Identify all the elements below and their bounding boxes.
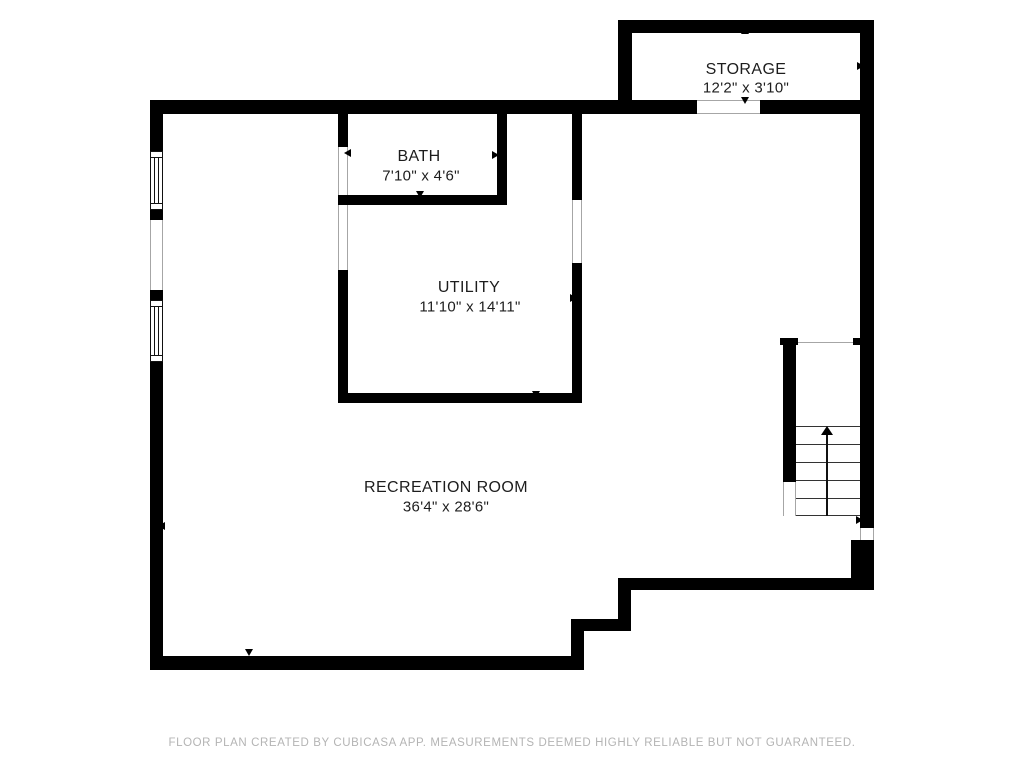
wall-top-under-storage-right — [760, 100, 874, 114]
opening-stair-left-lower — [783, 482, 796, 516]
wall-utility-right-lower — [572, 263, 582, 403]
window-frame-cap — [151, 355, 162, 356]
wall-bottom-right — [618, 578, 874, 590]
dimension-marker-storage-down — [741, 97, 749, 104]
window-frame-cap — [151, 157, 162, 158]
stair-tread — [796, 498, 860, 499]
door-opening-utility-right — [572, 200, 582, 263]
wall-top-under-storage-left — [618, 100, 697, 114]
room-label-utility: UTILITY — [438, 279, 500, 297]
dimension-marker-storage-right — [857, 62, 864, 70]
dimension-marker-bath-down — [416, 191, 424, 198]
dimension-marker-utility-down — [532, 391, 540, 398]
dimension-marker-recreation-down — [245, 649, 253, 656]
dimension-marker-bath-right — [492, 151, 499, 159]
room-size-bath: 7'10" x 4'6" — [382, 168, 460, 185]
window-symbol-2 — [150, 300, 163, 362]
dimension-marker-utility-up — [533, 107, 541, 114]
opening-left-wall — [150, 220, 163, 290]
door-opening-storage — [697, 100, 760, 114]
wall-utility-bottom — [338, 393, 582, 403]
floor-plan: STORAGE 12'2" x 3'10" BATH 7'10" x 4'6" … — [0, 0, 1024, 768]
stair-tread — [796, 462, 860, 463]
dimension-marker-utility-left — [341, 294, 348, 302]
window-glass-line — [158, 157, 159, 204]
dimension-marker-storage-up — [741, 27, 749, 34]
window-frame-cap — [151, 306, 162, 307]
room-label-recreation: RECREATION ROOM — [364, 479, 528, 497]
dimension-marker-utility-right — [570, 294, 577, 302]
stair-tread — [796, 444, 860, 445]
dimension-marker-storage-left — [625, 62, 632, 70]
stair-up-arrow-icon — [821, 426, 833, 435]
window-glass-line — [154, 306, 155, 356]
door-opening-right-wall — [860, 528, 874, 540]
wall-bottom-main — [150, 656, 584, 670]
wall-utility-left — [338, 270, 348, 403]
staircase — [796, 426, 860, 516]
dimension-marker-recreation-left — [158, 522, 165, 530]
room-size-utility: 11'10" x 14'11" — [419, 299, 520, 316]
room-label-storage: STORAGE — [706, 61, 787, 79]
window-frame-cap — [151, 203, 162, 204]
wall-left-segment-1 — [150, 100, 163, 152]
wall-top-main — [150, 100, 618, 114]
room-label-bath: BATH — [397, 148, 440, 166]
wall-bath-left-upper — [338, 114, 348, 147]
dimension-marker-recreation-right — [856, 516, 863, 524]
wall-bath-right — [497, 114, 507, 205]
window-glass-line — [158, 306, 159, 356]
stair-tread — [796, 480, 860, 481]
wall-stair-left-cap — [780, 338, 798, 345]
opening-stair-top-line — [798, 342, 853, 343]
dimension-marker-bath-up — [417, 107, 425, 114]
wall-right-upper — [860, 20, 874, 528]
stair-tread — [796, 515, 860, 516]
window-symbol-1 — [150, 151, 163, 210]
door-opening-utility-left — [338, 205, 348, 270]
wall-stair-right-stub — [853, 338, 861, 345]
dimension-marker-recreation-up — [247, 107, 255, 114]
room-size-storage: 12'2" x 3'10" — [703, 80, 789, 97]
stair-direction-line — [826, 434, 828, 516]
wall-utility-right-upper — [572, 114, 582, 200]
wall-left-segment-4 — [150, 362, 163, 656]
wall-stair-left — [783, 344, 796, 483]
room-size-recreation: 36'4" x 28'6" — [403, 499, 489, 516]
window-glass-line — [154, 157, 155, 204]
dimension-marker-bath-left — [344, 149, 351, 157]
footer-disclaimer: FLOOR PLAN CREATED BY CUBICASA APP. MEAS… — [168, 737, 855, 749]
